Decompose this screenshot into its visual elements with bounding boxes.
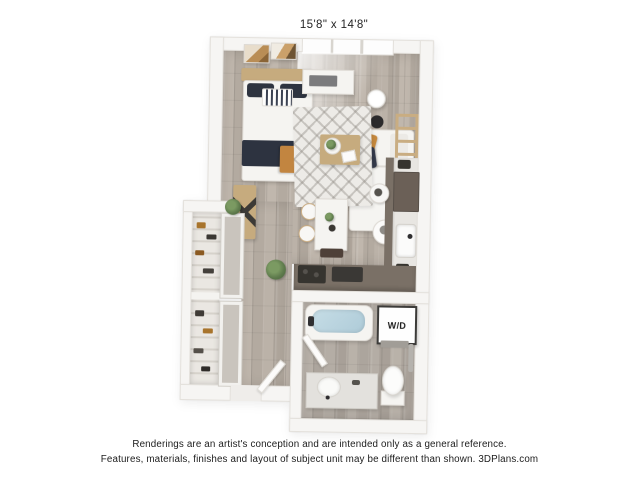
kitchen-sink — [395, 224, 417, 258]
dining-bench — [320, 248, 343, 257]
washer-dryer-front — [381, 340, 409, 347]
bathroom-bottom-wall — [289, 418, 427, 434]
closet-item — [203, 328, 213, 333]
towel-bar — [408, 344, 413, 372]
floor-plan: W/D — [179, 34, 438, 436]
closet-door-panel — [222, 305, 239, 383]
bathroom-vanity — [305, 372, 378, 409]
closet-item — [195, 310, 204, 316]
small-appliance — [398, 160, 411, 169]
closet-item — [206, 234, 216, 239]
window — [302, 38, 394, 56]
closet-item — [193, 348, 203, 353]
closet-door — [218, 301, 243, 387]
tub-faucet — [308, 316, 314, 326]
washer-dryer-label: W/D — [388, 320, 407, 330]
closet-door-panel — [223, 217, 240, 295]
unit-dimensions-label: 15'8" x 14'8" — [254, 19, 414, 31]
refrigerator — [393, 172, 420, 212]
closet-item — [197, 222, 206, 228]
dining-table-plant — [325, 212, 334, 221]
closet-item — [203, 268, 214, 273]
dining-bowl — [329, 225, 336, 232]
bathtub-water — [312, 309, 365, 333]
burner — [314, 272, 319, 277]
vanity-faucet — [326, 395, 330, 399]
closet-item — [195, 250, 204, 255]
closet-shelf-divider — [191, 292, 219, 299]
wall-art-frame — [271, 42, 297, 59]
closet-door — [219, 213, 244, 299]
disclaimer-line-2: Features, materials, finishes and layout… — [0, 452, 639, 467]
burner — [303, 269, 308, 274]
disclaimer-line-1: Renderings are an artist's conception an… — [0, 437, 639, 452]
vanity-accessory — [352, 380, 360, 385]
kitchen-bathroom-divider-wall — [291, 290, 429, 304]
washer-dryer: W/D — [377, 305, 418, 345]
closet-item — [201, 366, 210, 371]
left-wall — [207, 36, 224, 202]
built-in-appliance — [332, 267, 363, 283]
range-cooktop — [298, 265, 326, 283]
striped-accent-pillow — [262, 88, 293, 107]
tv-panel — [309, 75, 337, 86]
wall-art-frame — [244, 44, 270, 63]
bathroom-left-wall — [289, 290, 303, 432]
sink-faucet — [407, 234, 412, 239]
